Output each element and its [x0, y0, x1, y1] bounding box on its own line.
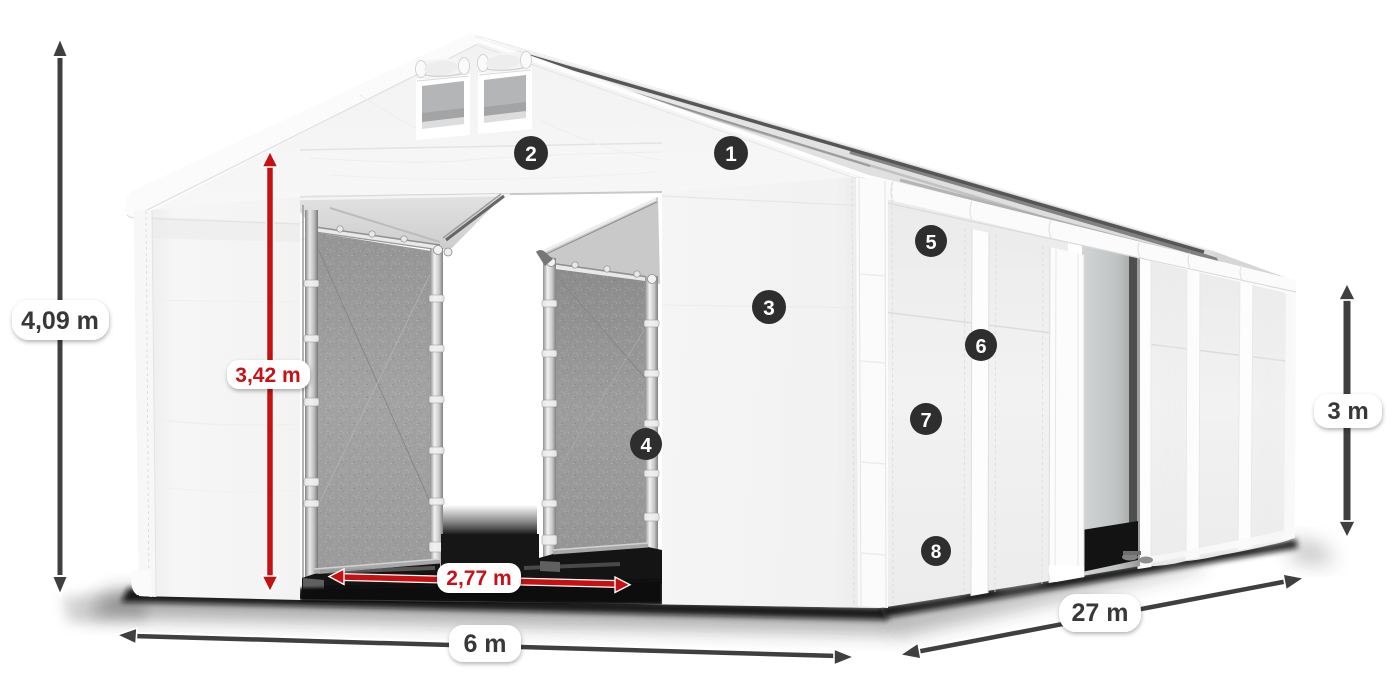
svg-text:3,42 m: 3,42 m — [235, 364, 300, 387]
svg-text:6: 6 — [975, 336, 986, 358]
svg-text:3 m: 3 m — [1327, 398, 1368, 425]
svg-text:4,09 m: 4,09 m — [21, 307, 99, 335]
svg-text:27 m: 27 m — [1072, 599, 1129, 627]
svg-text:3: 3 — [763, 297, 775, 320]
svg-text:4: 4 — [640, 435, 652, 457]
svg-text:5: 5 — [925, 232, 936, 254]
svg-text:6 m: 6 m — [463, 630, 506, 658]
svg-text:7: 7 — [920, 410, 931, 432]
svg-text:8: 8 — [931, 542, 942, 563]
svg-text:1: 1 — [725, 143, 737, 166]
svg-text:2: 2 — [525, 143, 537, 166]
svg-text:2,77 m: 2,77 m — [446, 567, 511, 590]
